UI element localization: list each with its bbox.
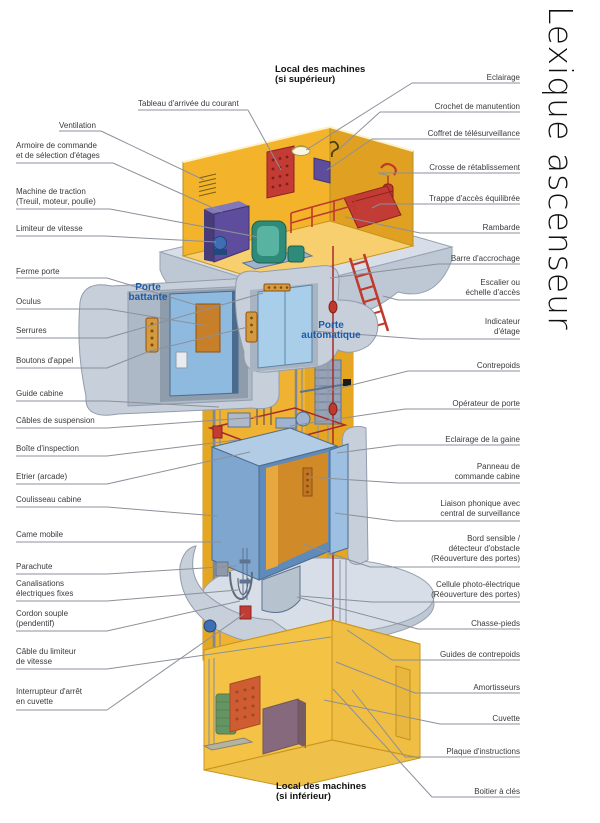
machine-room-bottom-heading: Local des machines (si inférieur) bbox=[276, 782, 366, 802]
leader-line bbox=[303, 544, 370, 567]
leader-line bbox=[107, 440, 237, 456]
leader-line bbox=[324, 700, 440, 724]
leader-line bbox=[330, 264, 438, 278]
leader-line bbox=[337, 445, 398, 453]
leader-line bbox=[105, 236, 216, 242]
leader-line bbox=[338, 112, 380, 150]
leader-line bbox=[113, 163, 222, 212]
leader-line bbox=[327, 139, 372, 170]
leader-line bbox=[308, 477, 398, 483]
leader-line bbox=[107, 637, 331, 669]
leader-line bbox=[107, 601, 240, 631]
leader-line bbox=[101, 131, 204, 180]
leader-line bbox=[306, 83, 412, 150]
leader-line bbox=[107, 590, 238, 601]
leader-line bbox=[248, 110, 281, 170]
leader-line bbox=[328, 371, 408, 391]
leader-line bbox=[107, 507, 217, 516]
lexique-ascenseur-page: Tableau d'arrivée du courantVentilationA… bbox=[0, 0, 600, 823]
leader-line bbox=[110, 209, 258, 237]
automatic-door-label: Porte automatique bbox=[271, 321, 391, 341]
leader-lines-layer bbox=[0, 0, 600, 823]
leader-line bbox=[107, 401, 219, 407]
leader-line bbox=[290, 409, 405, 426]
leader-line bbox=[107, 452, 250, 484]
leader-line bbox=[347, 630, 392, 660]
leader-line bbox=[107, 566, 236, 574]
leader-line bbox=[352, 690, 405, 757]
leader-line bbox=[383, 296, 398, 300]
page-title: Lexique ascenseur bbox=[541, 6, 580, 386]
leader-line bbox=[345, 217, 420, 233]
leader-line bbox=[336, 662, 415, 693]
machine-room-top-heading: Local des machines (si supérieur) bbox=[275, 65, 365, 85]
swing-door-label: Porte battante bbox=[88, 283, 208, 303]
leader-line bbox=[335, 513, 395, 521]
heading-line: (si supérieur) bbox=[275, 75, 365, 85]
leader-line bbox=[107, 417, 261, 428]
leader-line bbox=[107, 614, 244, 710]
leader-line bbox=[107, 327, 248, 368]
heading-line: (si inférieur) bbox=[276, 792, 366, 802]
leader-line bbox=[372, 204, 380, 208]
